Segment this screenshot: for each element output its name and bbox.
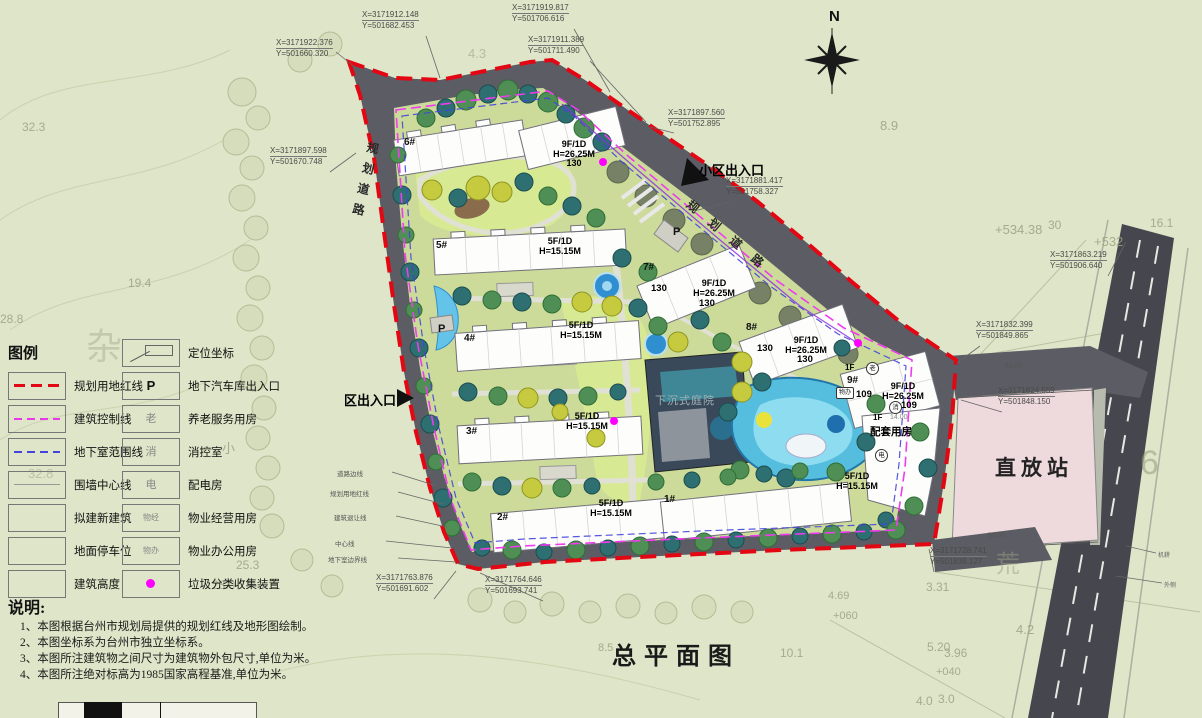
site-plan-canvas: 总平面图 N X=3171922.376Y=501660.320 X=31719… (0, 0, 1202, 718)
terrain-label: 3.31 (926, 580, 949, 594)
legend-label: 养老服务用房 (188, 411, 257, 427)
building-8-label: 8# (746, 322, 757, 333)
site-plan-graphics (0, 0, 1202, 718)
building-4-label: 4# (464, 333, 475, 344)
trash-dot-icon (122, 570, 180, 598)
legend-swatch-red-line (8, 372, 66, 400)
repeater-station-label: 直放站 (995, 452, 1073, 482)
legend-symbol-fire: 消 (122, 438, 180, 466)
coord-label: X=3171863.219Y=501906.640 (1050, 250, 1107, 270)
terrain-label: 32.3 (22, 120, 45, 134)
building-spec: 9F/1DH=26.25M130 (553, 140, 595, 169)
coord-label: X=3171728.741Y=501838.127 (930, 546, 987, 566)
entrance-side-label: 区出入口 (344, 390, 396, 409)
terrain-label: 19.4 (128, 276, 151, 290)
building-spec: 5F/1DH=15.15M (539, 237, 581, 256)
terrain-label: 10.1 (780, 646, 803, 660)
legend-label: 地下汽车库出入口 (188, 378, 280, 394)
boundary-note: 道路边线 (337, 468, 363, 478)
boundary-note: 规划用地红线 (330, 488, 369, 498)
building-spec: 5F/1DH=15.15M (836, 472, 878, 491)
terrain-label: 25.3 (236, 558, 259, 572)
page-title: 总平面图 (612, 636, 740, 671)
legend-swatch-parking (8, 537, 66, 565)
building-9-label: 9# (847, 375, 858, 386)
annex-name: 配套用房 (870, 424, 912, 439)
legend-symbol-p: P (122, 372, 180, 400)
scale-bar-tick (160, 702, 161, 718)
coord-label: X=3171881.417Y=501758.327 (726, 176, 783, 196)
building-1-label: 1# (664, 494, 675, 505)
terrain-label: +534.38 (995, 222, 1042, 237)
terrain-label: 30 (1048, 218, 1061, 232)
building-spec: 9F/1DH=26.25M (882, 382, 924, 401)
terrain-label: 4.3 (468, 46, 486, 61)
legend-label: 消控室 (188, 444, 223, 460)
edge-note: 机耕 (1158, 550, 1170, 559)
dim-109: 109 (856, 389, 872, 400)
coord-label: X=3171912.148Y=501682.453 (362, 10, 419, 30)
fire-control-badge: 消 (889, 401, 902, 414)
dim-130: 130 (699, 298, 715, 309)
elder-care-badge: 老 (866, 362, 879, 375)
coord-label: X=3171919.817Y=501706.616 (512, 3, 569, 23)
terrain-label: +060 (833, 610, 858, 622)
coord-label: X=3171911.389Y=501711.490 (528, 35, 584, 55)
building-6-label: 6# (404, 137, 415, 148)
note-item: 2、本图坐标系为台州市独立坐标系。 (20, 634, 210, 650)
building-spec: 5F/1DH=15.15M (560, 321, 602, 340)
terrain-label: 荒 (996, 544, 1020, 579)
building-spec: 9F/1DH=26.25M (785, 336, 827, 355)
legend-label: 配电房 (188, 477, 223, 493)
legend-symbol-elder: 老 (122, 405, 180, 433)
dim-50: 50.00 (988, 532, 1006, 540)
garage-entrance-p: P (673, 226, 680, 238)
elevation-label: 14.00 (890, 414, 908, 421)
terrain-label: +040 (936, 666, 961, 678)
terrain-label: 8.9 (880, 118, 898, 133)
legend-symbol-power: 电 (122, 471, 180, 499)
dim-50: 50.00 (1005, 363, 1023, 371)
building-spec: 5F/1DH=15.15M (566, 412, 608, 431)
sunken-courtyard-label: 下沉式庭院 (655, 392, 715, 408)
building-3-label: 3# (466, 426, 477, 437)
coord-label: X=3171897.560Y=501752.895 (668, 108, 725, 128)
note-item: 4、本图所注绝对标高为1985国家高程基准,单位为米。 (20, 666, 293, 682)
terrain-label: 28.8 (0, 312, 23, 326)
legend-label: 定位坐标 (188, 345, 234, 361)
boundary-note: 中心线 (335, 538, 355, 548)
dim-130: 130 (757, 343, 773, 354)
terrain-label: 4.2 (1016, 622, 1034, 637)
terrain-label: 4.0 (916, 694, 933, 708)
terrain-label: 6 (1140, 444, 1159, 483)
dim-109: 109 (901, 400, 917, 411)
floor-label: 1F (845, 363, 854, 372)
terrain-label: 3.96 (944, 646, 967, 660)
coord-label: X=3171832.399Y=501849.865 (976, 320, 1033, 340)
boundary-note: 地下室边界线 (328, 554, 367, 564)
terrain-label: +532 (1094, 234, 1123, 249)
building-spec: 9F/1DH=26.25M (693, 279, 735, 298)
building-spec: 5F/1DH=15.15M (590, 499, 632, 518)
edge-note: 外侧 (1164, 580, 1176, 589)
dim-130: 130 (651, 283, 667, 294)
floor-label: 1F (873, 413, 882, 422)
scale-bar-segment (84, 702, 122, 718)
building-2-label: 2# (497, 512, 508, 523)
legend-swatch-wall-line (8, 471, 66, 499)
coord-label: X=3171824.559Y=501848.150 (998, 386, 1055, 406)
notes-title: 说明: (8, 594, 45, 618)
legend-swatch-new-building (8, 504, 66, 532)
coord-label: X=3171922.376Y=501660.320 (276, 38, 333, 58)
terrain-label: 8.5 (598, 642, 613, 654)
coordinate-flag-icon (122, 339, 180, 367)
coord-label: X=3171763.876Y=501691.602 (376, 573, 433, 593)
legend-swatch-control-line (8, 405, 66, 433)
terrain-label: 16.1 (1150, 216, 1173, 230)
legend-label: 物业经营用房 (188, 510, 257, 526)
coord-label: X=3171764.646Y=501693.741 (485, 575, 542, 595)
boundary-note: 建筑退让线 (334, 512, 367, 522)
building-7-label: 7# (643, 262, 654, 273)
entrance-main-label: 小区出入口 (699, 160, 764, 179)
legend-title: 图例 (8, 342, 38, 363)
legend-label: 物业办公用房 (188, 543, 257, 559)
north-label: N (829, 8, 840, 25)
power-room-badge: 电 (875, 449, 888, 462)
note-item: 1、本图根据台州市规划局提供的规划红线及地形图绘制。 (20, 618, 313, 634)
legend-swatch-basement-line (8, 438, 66, 466)
legend-label: 垃圾分类收集装置 (188, 576, 280, 592)
terrain-label: 4.69 (828, 590, 849, 602)
building-5-label: 5# (436, 240, 447, 251)
legend-symbol-pm-business: 物经 (122, 504, 180, 532)
legend-label: 建筑高度 (74, 576, 120, 592)
legend-symbol-pm-office: 物办 (122, 537, 180, 565)
dim-130: 130 (797, 354, 813, 365)
coord-label: X=3171897.598Y=501670.748 (270, 146, 327, 166)
terrain-label: 杂 (86, 318, 122, 370)
property-office-badge: 物办 (836, 387, 854, 399)
garage-entrance-p: P (438, 323, 445, 335)
terrain-label: 3.0 (938, 692, 955, 706)
note-item: 3、本图所注建筑物之间尺寸为建筑物外包尺寸,单位为米。 (20, 650, 316, 666)
terrain-label: 小 (222, 438, 235, 457)
